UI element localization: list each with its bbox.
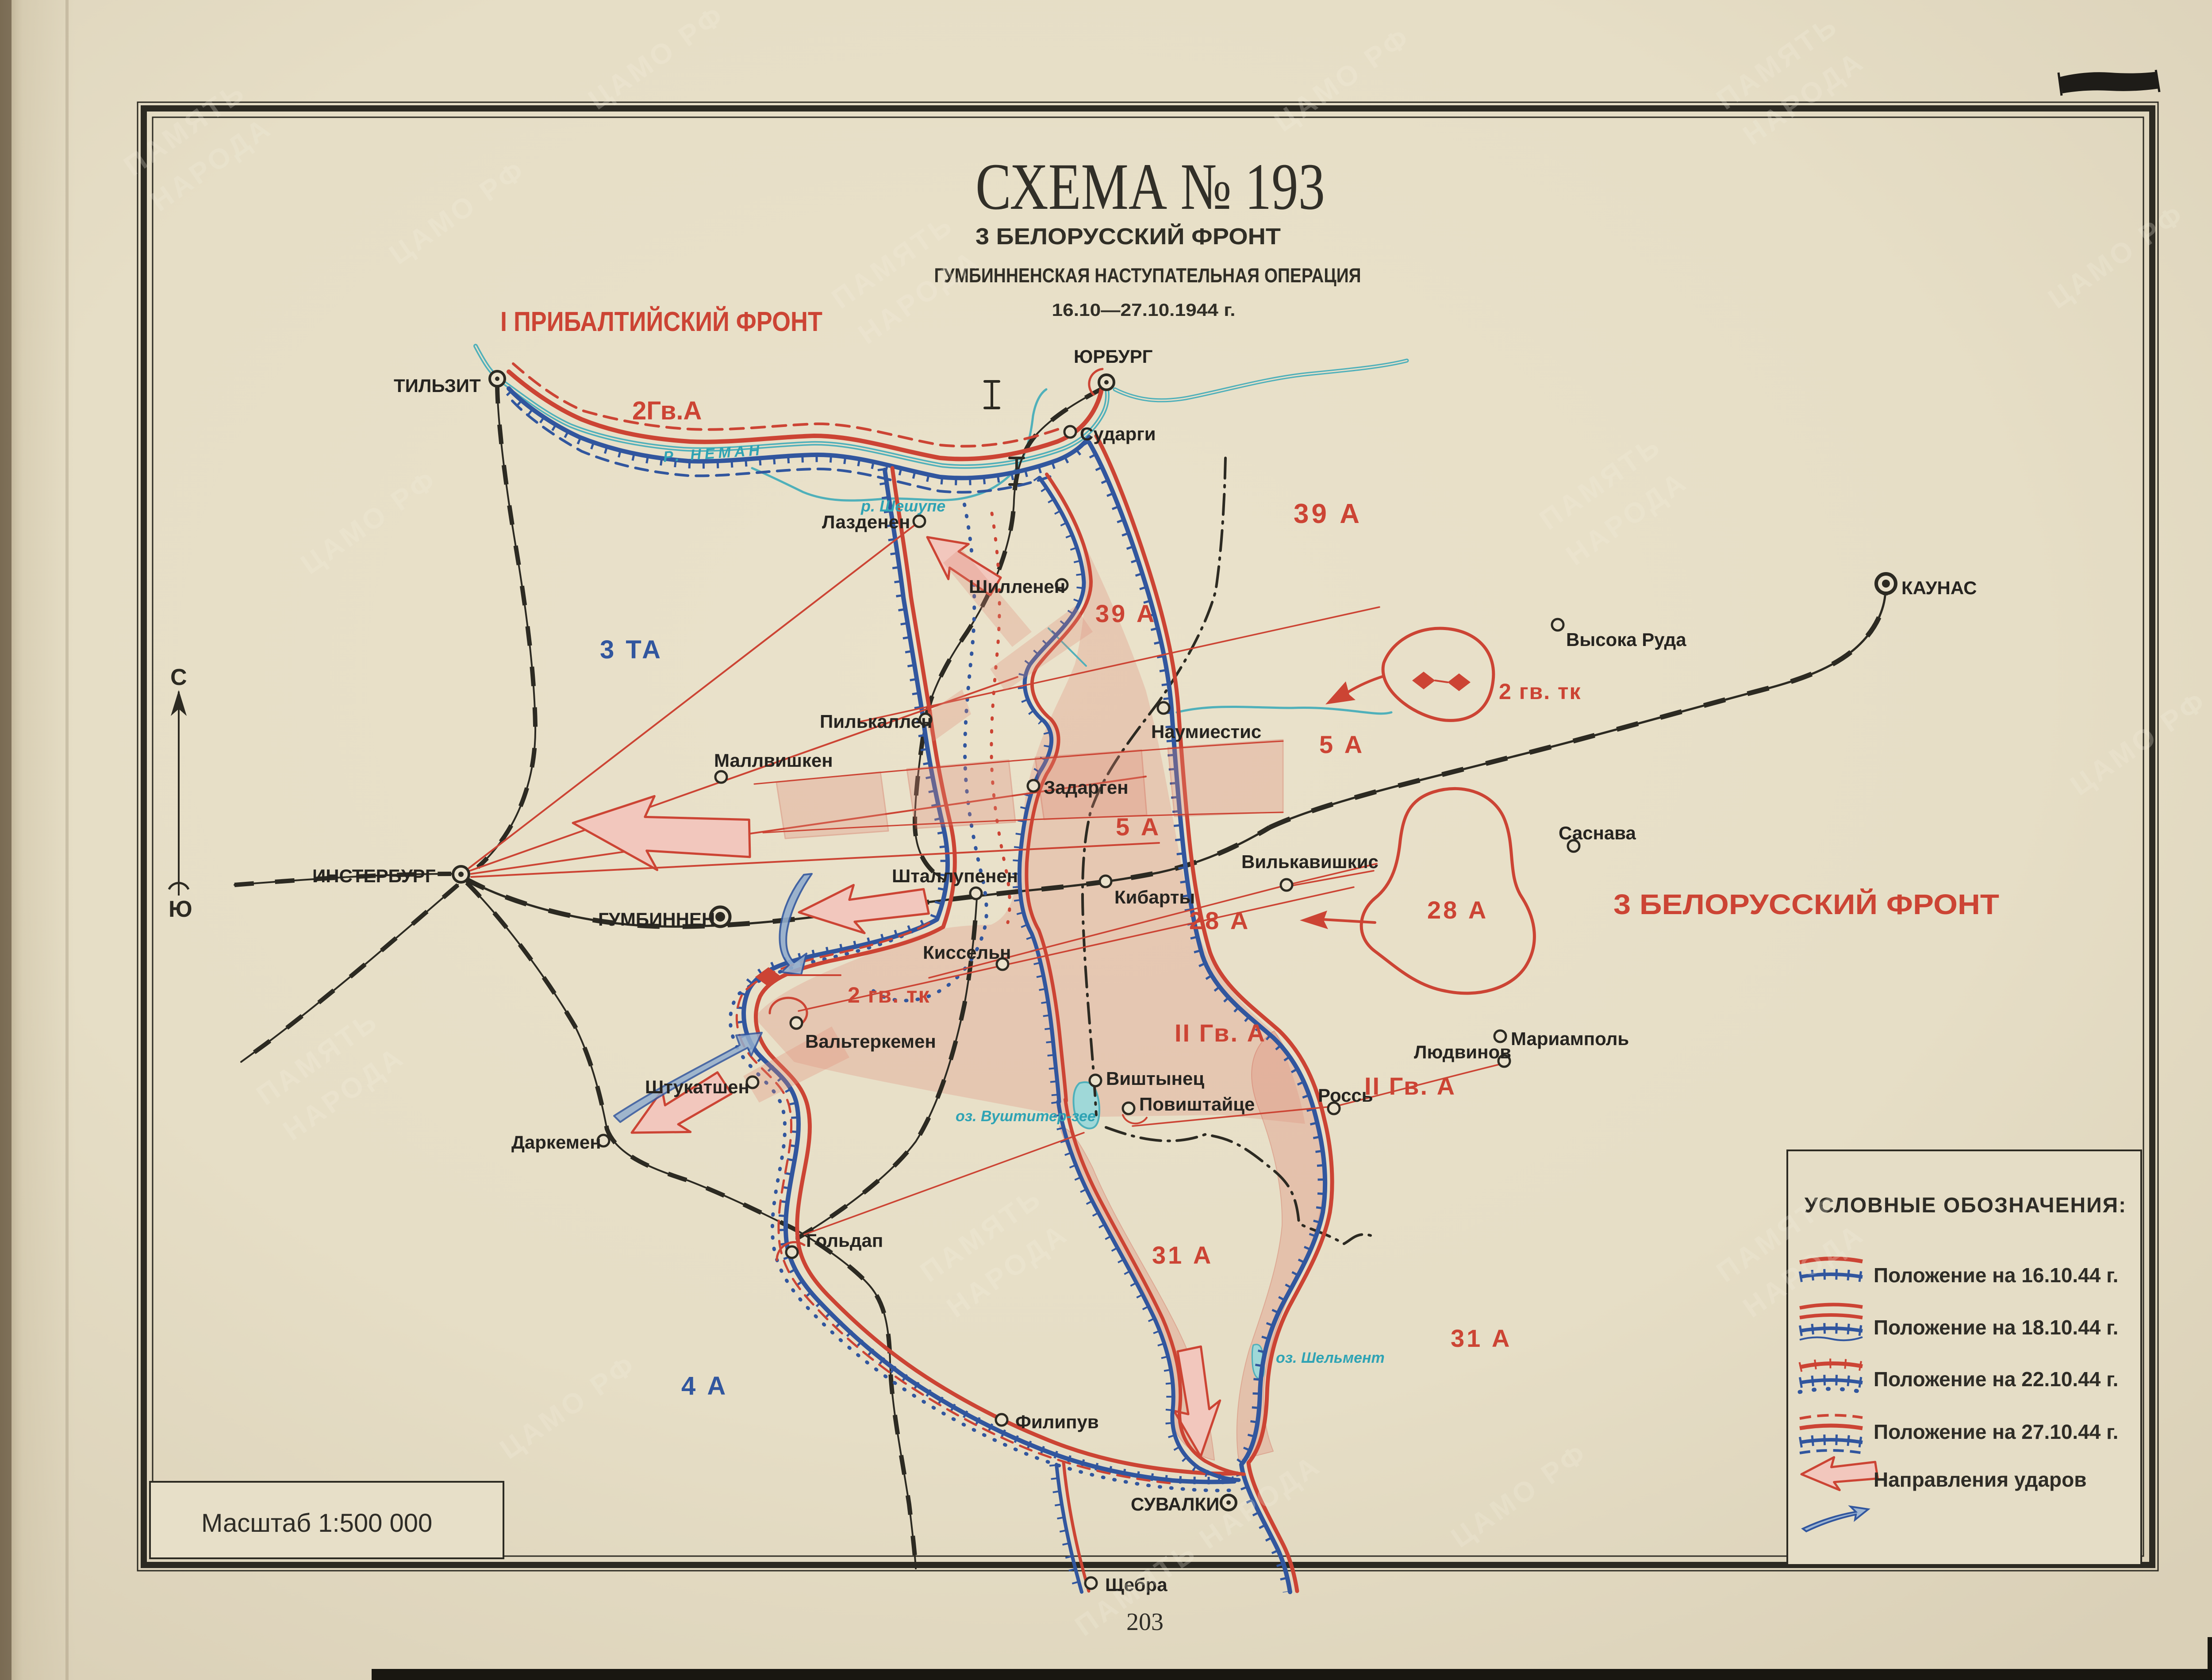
svg-text:Пилькаллен: Пилькаллен — [820, 711, 932, 732]
svg-text:ЮРБУРГ: ЮРБУРГ — [1074, 346, 1152, 367]
svg-text:Маллвишкен: Маллвишкен — [714, 750, 833, 771]
svg-text:Киссельн: Киссельн — [923, 942, 1011, 963]
svg-text:Ю: Ю — [169, 896, 192, 922]
svg-text:р. Шешупе: р. Шешупе — [860, 497, 945, 515]
svg-text:39 А: 39 А — [1294, 499, 1362, 529]
svg-text:5 А: 5 А — [1116, 813, 1161, 841]
svg-text:3 БЕЛОРУССКИЙ ФРОНТ: 3 БЕЛОРУССКИЙ ФРОНТ — [975, 223, 1281, 250]
svg-text:СУВАЛКИ: СУВАЛКИ — [1131, 1494, 1219, 1515]
svg-text:оз. Шельмент: оз. Шельмент — [1276, 1349, 1385, 1366]
svg-text:28 А: 28 А — [1427, 896, 1488, 924]
svg-text:28 А: 28 А — [1189, 907, 1250, 934]
svg-text:КАУНАС: КАУНАС — [1901, 577, 1977, 598]
svg-text:С: С — [170, 665, 187, 690]
svg-text:Задарген: Задарген — [1044, 777, 1129, 798]
svg-text:Филипув: Филипув — [1015, 1411, 1099, 1432]
svg-text:Положение на 22.10.44 г.: Положение на 22.10.44 г. — [1874, 1368, 2118, 1391]
svg-text:Положение на 18.10.44 г.: Положение на 18.10.44 г. — [1874, 1316, 2118, 1339]
svg-text:Шталлупенен: Шталлупенен — [892, 865, 1018, 886]
svg-text:Направления ударов: Направления ударов — [1874, 1468, 2087, 1491]
svg-text:УСЛОВНЫЕ ОБОЗНАЧЕНИЯ:: УСЛОВНЫЕ ОБОЗНАЧЕНИЯ: — [1805, 1194, 2127, 1217]
svg-text:Вальтеркемен: Вальтеркемен — [805, 1031, 936, 1052]
svg-text:Наумиестис: Наумиестис — [1151, 721, 1261, 742]
svg-text:II Гв. А: II Гв. А — [1364, 1072, 1456, 1100]
svg-text:2Гв.А: 2Гв.А — [632, 396, 702, 425]
svg-text:Положение на 16.10.44 г.: Положение на 16.10.44 г. — [1874, 1264, 2118, 1287]
svg-text:3 БЕЛОРУССКИЙ ФРОНТ: 3 БЕЛОРУССКИЙ ФРОНТ — [1613, 888, 1999, 920]
svg-text:Виштынец: Виштынец — [1106, 1068, 1204, 1089]
svg-text:39 А: 39 А — [1095, 600, 1156, 627]
svg-text:Кибарты: Кибарты — [1114, 887, 1195, 907]
svg-text:ГУМБИННЕН: ГУМБИННЕН — [598, 909, 715, 930]
svg-text:Даркемен: Даркемен — [511, 1132, 601, 1153]
svg-text:Высока Руда: Высока Руда — [1566, 629, 1686, 650]
svg-text:16.10—27.10.1944 г.: 16.10—27.10.1944 г. — [1052, 300, 1236, 320]
svg-text:оз. Вуштитер-зее: оз. Вуштитер-зее — [956, 1108, 1096, 1125]
svg-text:СХЕМА № 193: СХЕМА № 193 — [975, 150, 1325, 223]
svg-text:31 А: 31 А — [1451, 1324, 1512, 1352]
svg-text:I ПРИБАЛТИЙСКИЙ ФРОНТ: I ПРИБАЛТИЙСКИЙ ФРОНТ — [500, 306, 822, 337]
svg-text:2 гв. тк: 2 гв. тк — [848, 983, 930, 1007]
svg-text:Шилленен: Шилленен — [969, 576, 1065, 597]
svg-text:ГУМБИННЕНСКАЯ НАСТУПАТЕЛЬНАЯ О: ГУМБИННЕНСКАЯ НАСТУПАТЕЛЬНАЯ ОПЕРАЦИЯ — [934, 264, 1361, 287]
svg-text:II Гв. А: II Гв. А — [1175, 1019, 1266, 1047]
svg-text:5 А: 5 А — [1319, 730, 1364, 758]
svg-text:Масштаб 1:500 000: Масштаб 1:500 000 — [201, 1509, 432, 1538]
svg-text:ИНСТЕРБУРГ: ИНСТЕРБУРГ — [312, 865, 436, 886]
svg-text:Людвинов: Людвинов — [1414, 1042, 1511, 1062]
svg-text:Саснава: Саснава — [1559, 823, 1636, 843]
svg-text:Мариамполь: Мариамполь — [1511, 1028, 1629, 1049]
svg-text:203: 203 — [1126, 1608, 1164, 1636]
svg-text:Положение на 27.10.44 г.: Положение на 27.10.44 г. — [1874, 1420, 2118, 1443]
svg-text:31 А: 31 А — [1152, 1241, 1213, 1269]
svg-text:3 ТА: 3 ТА — [600, 635, 663, 664]
svg-text:4 А: 4 А — [681, 1372, 728, 1400]
svg-text:Повиштайце: Повиштайце — [1139, 1094, 1255, 1115]
svg-text:Сударги: Сударги — [1080, 423, 1156, 444]
svg-text:ТИЛЬЗИТ: ТИЛЬЗИТ — [394, 375, 481, 396]
svg-text:2 гв. тк: 2 гв. тк — [1499, 679, 1582, 704]
svg-text:Гольдап: Гольдап — [806, 1230, 883, 1251]
svg-text:Штукатшен: Штукатшен — [645, 1076, 749, 1097]
svg-text:Вилькавишкис: Вилькавишкис — [1241, 851, 1379, 872]
